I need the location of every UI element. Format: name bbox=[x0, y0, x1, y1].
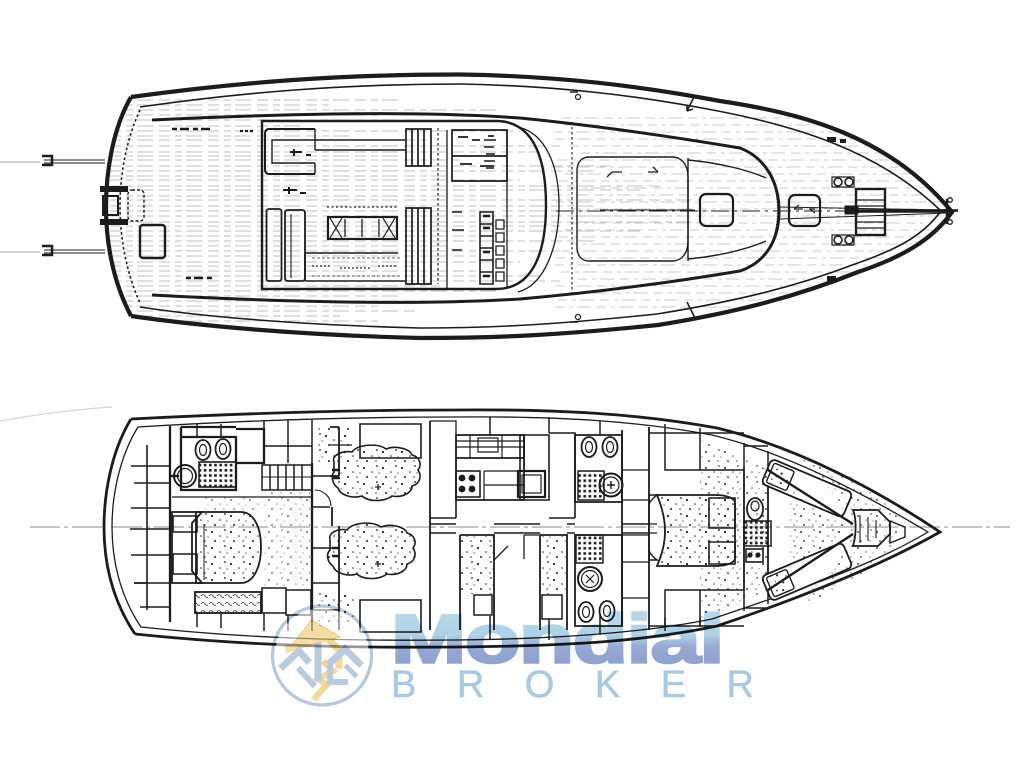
svg-text:BROKER: BROKER bbox=[391, 664, 794, 706]
